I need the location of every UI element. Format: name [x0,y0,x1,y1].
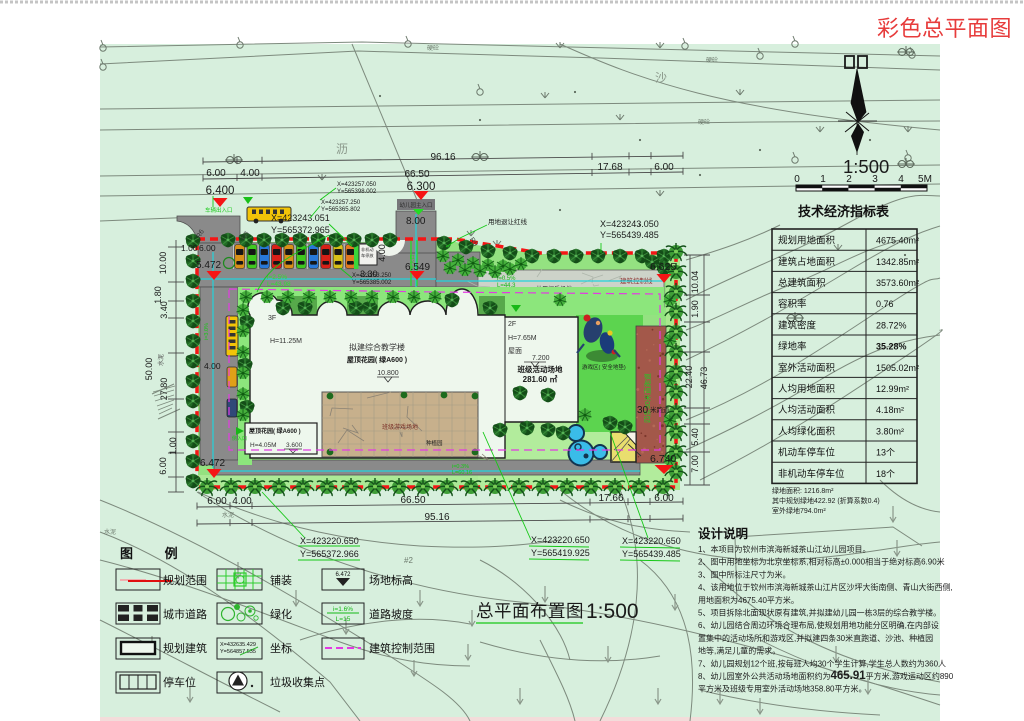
svg-text:1342.85m²: 1342.85m² [876,257,919,267]
svg-text:设计说明: 设计说明 [698,526,748,541]
svg-text:6.472: 6.472 [335,572,351,578]
svg-text:4: 4 [898,174,904,185]
svg-text:3.30: 3.30 [360,269,378,279]
svg-text:幼儿园主入口: 幼儿园主入口 [399,201,432,209]
svg-text:2F: 2F [508,321,516,328]
svg-text:班级活动场地: 班级活动场地 [518,364,563,374]
svg-text:6.00: 6.00 [199,243,216,253]
svg-text:停车位: 停车位 [163,675,196,689]
svg-text:人均用地面积: 人均用地面积 [778,383,836,395]
svg-text:35.28%: 35.28% [876,342,907,352]
svg-text:拟建综合教学楼: 拟建综合教学楼 [349,342,405,352]
svg-text:28.72%: 28.72% [876,320,907,330]
svg-text:22.40: 22.40 [684,366,694,389]
svg-text:#2: #2 [404,556,413,565]
svg-text:17.68: 17.68 [597,162,622,173]
svg-text:6.00: 6.00 [206,168,226,179]
svg-text:3.40: 3.40 [159,301,169,319]
svg-text:侧入口: 侧入口 [232,435,247,442]
svg-text:Y=565439.485: Y=565439.485 [600,230,659,240]
svg-text:6.472: 6.472 [200,458,225,469]
svg-text:X=423220.650: X=423220.650 [300,536,359,546]
svg-text:1.00: 1.00 [168,437,178,455]
svg-text:车辆出入口: 车辆出入口 [205,206,233,214]
svg-text:10.00: 10.00 [158,252,168,275]
svg-text:5、项目拆除北面现状原有建筑,并拟建幼儿园一栋3层的综合教学: 5、项目拆除北面现状原有建筑,并拟建幼儿园一栋3层的综合教学楼。 [698,608,941,618]
svg-text:3、图中所标注尺寸为米。: 3、图中所标注尺寸为米。 [698,569,790,579]
svg-text:7.00: 7.00 [690,455,700,473]
svg-text:1.80: 1.80 [153,286,163,304]
svg-text:彩色总平面图: 彩色总平面图 [877,16,1012,41]
svg-text:人均绿化面积: 人均绿化面积 [778,425,836,437]
svg-text:Y=565439.485: Y=565439.485 [622,549,681,559]
svg-text:L=15: L=15 [336,616,351,623]
svg-text:2、图中用地坐标为北京坐标系,相对标高±0.000相当于绝对: 2、图中用地坐标为北京坐标系,相对标高±0.000相当于绝对标高6.90米 [698,557,945,567]
svg-text:机动车停车位: 机动车停车位 [778,447,836,459]
svg-text:3573.60m²: 3573.60m² [876,278,919,288]
svg-text:X=423257.050: X=423257.050 [337,182,377,188]
svg-text:10.04: 10.04 [690,271,700,294]
svg-text:18个: 18个 [876,469,895,479]
svg-text:平方米及班级专用室外活动场地358.80平方米。: 平方米及班级专用室外活动场地358.80平方米。 [698,684,866,694]
svg-text:L=60.16: L=60.16 [452,470,472,476]
svg-text:0: 0 [794,174,800,185]
svg-text:规划建筑: 规划建筑 [163,641,207,655]
svg-text:7.200: 7.200 [532,355,550,362]
svg-text:Y=565385.002: Y=565385.002 [352,280,392,286]
svg-text:4.00: 4.00 [377,244,387,262]
svg-text:13个: 13个 [876,448,895,458]
svg-text:6.740: 6.740 [650,453,676,465]
svg-text:6.625: 6.625 [650,261,676,273]
svg-text:3F: 3F [268,315,276,322]
svg-text:屋顶花园( 绿A600 ): 屋顶花园( 绿A600 ) [249,427,301,435]
svg-text:X=423257.250: X=423257.250 [321,200,361,206]
svg-text:66.50: 66.50 [404,169,429,180]
svg-text:281.60 ㎡: 281.60 ㎡ [523,374,558,384]
svg-text:用地退让红线: 用地退让红线 [488,217,528,226]
svg-text:种植园: 种植园 [426,439,443,447]
svg-text:总平面布置图: 总平面布置图 [476,601,584,621]
svg-text:3: 3 [872,174,878,185]
svg-text:室外绿地794.0m²: 室外绿地794.0m² [772,506,826,515]
svg-text:1:500: 1:500 [586,600,639,623]
svg-text:7、幼儿园规划12个班,按每班人均30个学生计算,学生总人数: 7、幼儿园规划12个班,按每班人均30个学生计算,学生总人数约为360人 [698,658,946,668]
svg-text:i=3.0%: i=3.0% [204,323,210,340]
svg-text:5M: 5M [918,174,932,185]
svg-text:规划用地面积: 规划用地面积 [778,235,836,247]
svg-text:95.16: 95.16 [424,512,449,523]
svg-text:6.00: 6.00 [654,493,674,504]
svg-text:H=4.05M: H=4.05M [250,442,277,449]
svg-text:i=1.6%: i=1.6% [333,606,353,613]
svg-text:3.80m²: 3.80m² [876,426,904,436]
svg-text:其中规划绿地422.92 (折算系数0.4): 其中规划绿地422.92 (折算系数0.4) [772,496,880,505]
svg-text:4、该用地位于钦州市滨海新城茶山江片区沙坪大街南侧、青山大街: 4、该用地位于钦州市滨海新城茶山江片区沙坪大街南侧、青山大街西侧, [698,582,953,592]
svg-text:屋面: 屋面 [508,347,522,355]
svg-text:8、幼儿园室外公共活动场地面积约为465.91平方米,游戏运: 8、幼儿园室外公共活动场地面积约为465.91平方米,游戏运动区约890 [698,670,954,682]
svg-text:沥: 沥 [336,142,348,156]
svg-text:硬砼: 硬砼 [427,44,439,52]
svg-text:X=423220.650: X=423220.650 [622,536,681,546]
svg-text:0.76: 0.76 [876,299,894,309]
svg-text:X=423243.050: X=423243.050 [600,219,659,229]
svg-text:技术经济指标表: 技术经济指标表 [798,204,890,219]
svg-text:Y=565419.925: Y=565419.925 [531,548,590,558]
svg-text:50.00: 50.00 [144,358,154,381]
svg-text:场地标高: 场地标高 [369,573,413,587]
svg-text:1、本项目为钦州市滨海新城茶山江幼儿园项目。: 1、本项目为钦州市滨海新城茶山江幼儿园项目。 [698,544,870,554]
svg-text:5.472: 5.472 [196,260,221,271]
svg-text:4.00: 4.00 [240,168,260,179]
svg-text:6.00: 6.00 [207,496,227,507]
svg-text:30: 30 [637,405,649,416]
svg-text:非机动车停车位: 非机动车停车位 [778,468,845,480]
svg-text:1: 1 [820,174,826,185]
svg-text:垃圾收集点: 垃圾收集点 [270,675,325,689]
svg-text:游戏区( 安全地垫): 游戏区( 安全地垫) [582,363,626,371]
svg-text:10.800: 10.800 [377,370,399,377]
svg-text:室外活动面积: 室外活动面积 [778,362,836,374]
svg-text:车停放: 车停放 [361,252,374,259]
svg-text:铺装: 铺装 [270,574,292,587]
svg-text:1505.02m²: 1505.02m² [876,363,919,373]
svg-text:2: 2 [846,174,852,185]
svg-text:总建筑面积: 总建筑面积 [778,277,826,289]
svg-text:水泥: 水泥 [157,354,165,366]
svg-text:X=423220.650: X=423220.650 [531,535,590,545]
svg-text:H=11.25M: H=11.25M [270,338,302,345]
svg-text:66.50: 66.50 [400,495,425,506]
svg-text:Y=565365.802: Y=565365.802 [321,207,361,213]
svg-text:绿地率: 绿地率 [778,341,807,353]
svg-text:X=423243.051: X=423243.051 [271,213,330,223]
svg-text:建筑控制范围: 建筑控制范围 [369,641,435,655]
svg-text:6.00: 6.00 [158,457,168,475]
svg-text:坐标: 坐标 [270,641,292,655]
svg-text:建筑密度: 建筑密度 [778,319,817,331]
svg-text:规划范围: 规划范围 [163,573,207,587]
svg-text:1.90: 1.90 [690,300,700,318]
svg-text:8.00: 8.00 [406,216,426,227]
svg-text:硬砼: 硬砼 [698,118,710,126]
svg-text:1.00: 1.00 [181,243,198,253]
svg-text:绿地面积: 1216.8m²: 绿地面积: 1216.8m² [772,486,834,495]
svg-text:L=43.98: L=43.98 [267,281,291,288]
svg-text:4.00: 4.00 [204,361,221,371]
svg-text:用地面积为4675.40平方米。: 用地面积为4675.40平方米。 [698,595,799,605]
svg-text:4.18m²: 4.18m² [876,405,904,415]
svg-text:硬砼: 硬砼 [706,56,718,64]
svg-text:H=7.65M: H=7.65M [508,335,537,342]
svg-text:置集中的活动场所和游戏区,并拟建四条30米直跑道、沙池、种植: 置集中的活动场所和游戏区,并拟建四条30米直跑道、沙池、种植园 [698,633,933,643]
svg-text:6.400: 6.400 [206,185,235,197]
svg-text:Y=565372.965: Y=565372.965 [271,225,330,235]
svg-text:46.73: 46.73 [699,367,709,390]
svg-text:人均活动面积: 人均活动面积 [778,404,836,416]
svg-text:6、幼儿园结合周边环境合理布局,使规划用地功能分区明确,在内: 6、幼儿园结合周边环境合理布局,使规划用地功能分区明确,在内部设 [698,620,939,630]
svg-text:4675.40m²: 4675.40m² [876,236,919,246]
svg-text:建筑占地面积: 建筑占地面积 [778,256,836,268]
svg-text:96.16: 96.16 [430,152,455,163]
svg-text:沙: 沙 [655,71,667,85]
svg-text:i=2.5%: i=2.5% [267,274,287,281]
svg-text:绿化: 绿化 [270,607,292,621]
svg-text:12.99m²: 12.99m² [876,384,909,394]
svg-text:17.66: 17.66 [598,493,623,504]
svg-text:道路坡度: 道路坡度 [369,607,413,621]
svg-text:Y=565372.966: Y=565372.966 [300,549,359,559]
svg-text:水泥: 水泥 [104,528,116,536]
svg-text:班级游戏场地: 班级游戏场地 [382,423,418,431]
svg-text:地等,满足儿童的需求。: 地等,满足儿童的需求。 [698,646,780,656]
svg-text:5.40: 5.40 [690,428,700,446]
svg-text:27.80: 27.80 [159,378,169,401]
svg-text:X=432635.429: X=432635.429 [220,642,256,648]
svg-text:6.00: 6.00 [654,162,674,173]
svg-text:城市道路: 城市道路 [163,607,207,621]
svg-text:图 例: 图 例 [120,546,192,561]
svg-text:3.600: 3.600 [286,442,303,449]
svg-text:4.00: 4.00 [232,496,252,507]
svg-text:水泥: 水泥 [222,511,234,519]
svg-text:Y=565398.002: Y=565398.002 [337,189,377,195]
svg-text:屋顶花园( 绿A600 ): 屋顶花园( 绿A600 ) [347,355,407,364]
svg-text:容积率: 容积率 [778,298,807,310]
